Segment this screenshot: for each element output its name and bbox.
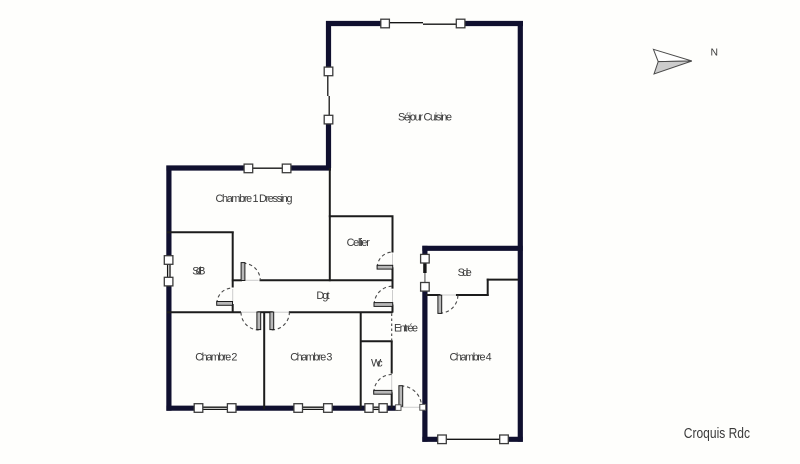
- svg-text:Chambre 4: Chambre 4: [450, 352, 492, 364]
- svg-text:Chambre 2: Chambre 2: [195, 351, 237, 363]
- svg-text:Dgt: Dgt: [316, 290, 329, 302]
- svg-text:Croquis Rdc: Croquis Rdc: [684, 425, 751, 442]
- svg-text:Chambre 3: Chambre 3: [290, 352, 332, 364]
- svg-text:Chambre 1 Dressing: Chambre 1 Dressing: [216, 193, 293, 205]
- svg-text:Cellier: Cellier: [347, 237, 371, 249]
- svg-text:Wc: Wc: [371, 358, 383, 370]
- svg-text:Sde: Sde: [458, 267, 472, 279]
- svg-text:Séjour Cuisine: Séjour Cuisine: [398, 112, 452, 124]
- svg-text:N: N: [711, 47, 719, 58]
- svg-text:Entrée: Entrée: [394, 323, 418, 335]
- svg-text:SdB: SdB: [192, 266, 205, 278]
